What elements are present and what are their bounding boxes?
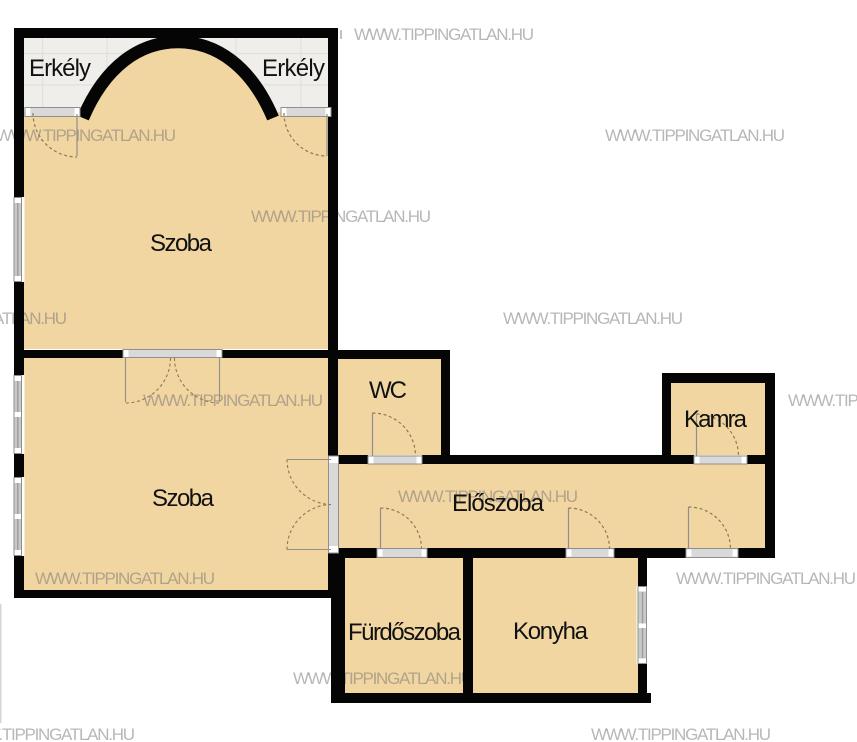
svg-text:WWW.TIPPINGATLAN.HU: WWW.TIPPINGATLAN.HU: [503, 309, 684, 328]
svg-text:Konyha: Konyha: [513, 618, 589, 645]
svg-text:WWW.TIPPINGATLAN.HU: WWW.TIPPINGATLAN.HU: [605, 126, 786, 145]
svg-text:WWW.TIPPINGATLAN.HU: WWW.TIPPINGATLAN.HU: [354, 25, 535, 44]
svg-text:WWW.TIPPINGATLAN.HU: WWW.TIPPINGATLAN.HU: [0, 309, 68, 328]
svg-text:Előszoba: Előszoba: [452, 490, 545, 517]
svg-text:WC: WC: [369, 377, 407, 404]
svg-text:Fürdőszoba: Fürdőszoba: [348, 619, 462, 646]
svg-text:Szoba: Szoba: [152, 485, 215, 512]
svg-text:Kamra: Kamra: [684, 406, 748, 433]
svg-text:WWW.TIPPINGATLAN.HU: WWW.TIPPINGATLAN.HU: [0, 725, 136, 742]
svg-text:WWW.TIPPINGATLAN.HU: WWW.TIPPINGATLAN.HU: [788, 391, 857, 410]
svg-text:WWW.TIPPINGATLAN.HU: WWW.TIPPINGATLAN.HU: [143, 391, 324, 410]
svg-text:WWW.TIPPINGATLAN.HU: WWW.TIPPINGATLAN.HU: [591, 725, 772, 742]
svg-text:WWW.TIPPINGATLAN.HU: WWW.TIPPINGATLAN.HU: [0, 126, 177, 145]
svg-text:WWW.TIPPINGATLAN.HU: WWW.TIPPINGATLAN.HU: [35, 569, 216, 588]
svg-text:WWW.TIPPINGATLAN.HU: WWW.TIPPINGATLAN.HU: [251, 207, 432, 226]
svg-text:Erkély: Erkély: [262, 55, 325, 82]
svg-text:WWW.TIPPINGATLAN.HU: WWW.TIPPINGATLAN.HU: [293, 669, 474, 688]
svg-text:Szoba: Szoba: [150, 230, 213, 257]
svg-text:Erkély: Erkély: [29, 55, 91, 82]
svg-text:WWW.TIPPINGATLAN.HU: WWW.TIPPINGATLAN.HU: [676, 569, 857, 588]
